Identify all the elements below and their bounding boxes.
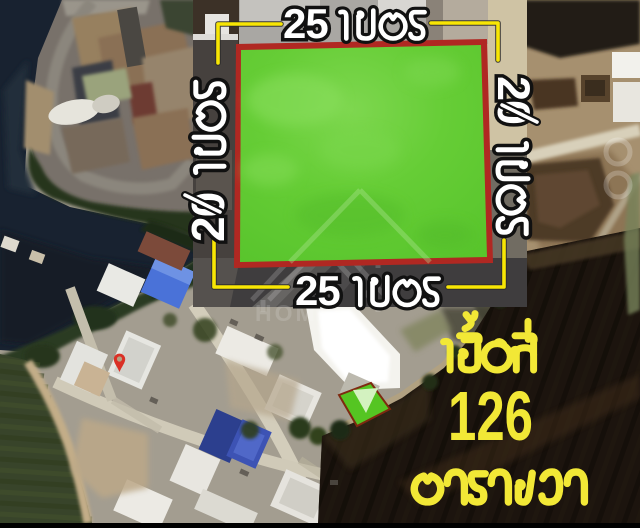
svg-text:126: 126: [448, 377, 533, 455]
svg-text:25: 25: [283, 0, 328, 47]
svg-text:25: 25: [295, 267, 340, 314]
